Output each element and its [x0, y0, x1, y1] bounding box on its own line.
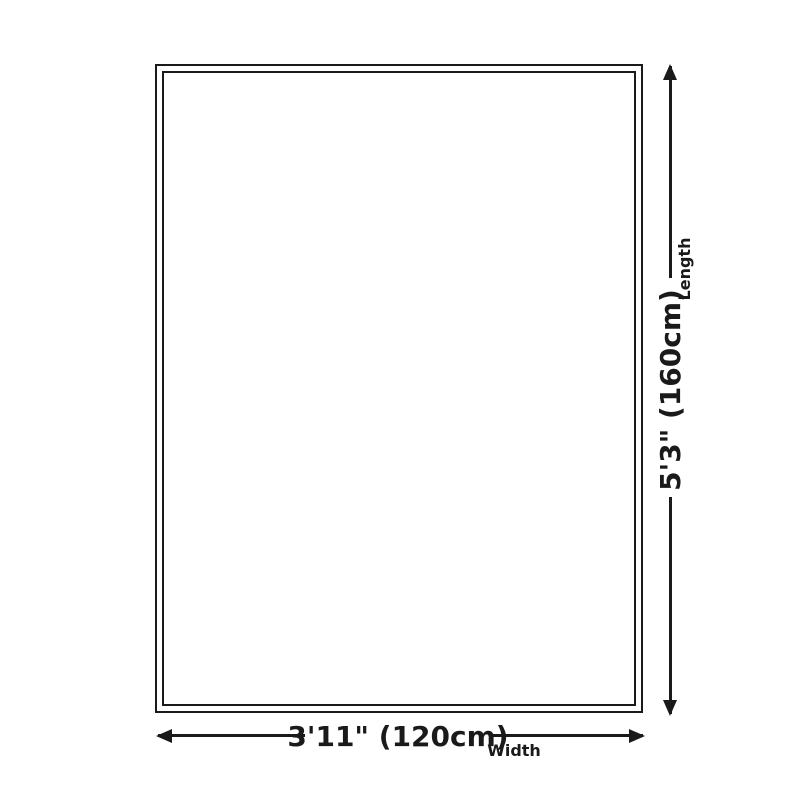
product-outline-inner: [162, 71, 636, 706]
length-value: 5'3" (160cm): [657, 289, 685, 491]
product-outline: [155, 64, 643, 713]
arrow-down-icon: [663, 700, 677, 716]
dimension-diagram: Length 5'3" (160cm) 3'11" (120cm) Width: [0, 0, 800, 800]
width-value: 3'11" (120cm): [287, 723, 508, 751]
width-label: Width: [487, 743, 541, 759]
length-line-bottom: [669, 497, 672, 714]
length-line-top: [669, 66, 672, 278]
width-line-left: [158, 734, 305, 737]
arrow-right-icon: [629, 729, 645, 743]
width-line-right: [493, 734, 643, 737]
